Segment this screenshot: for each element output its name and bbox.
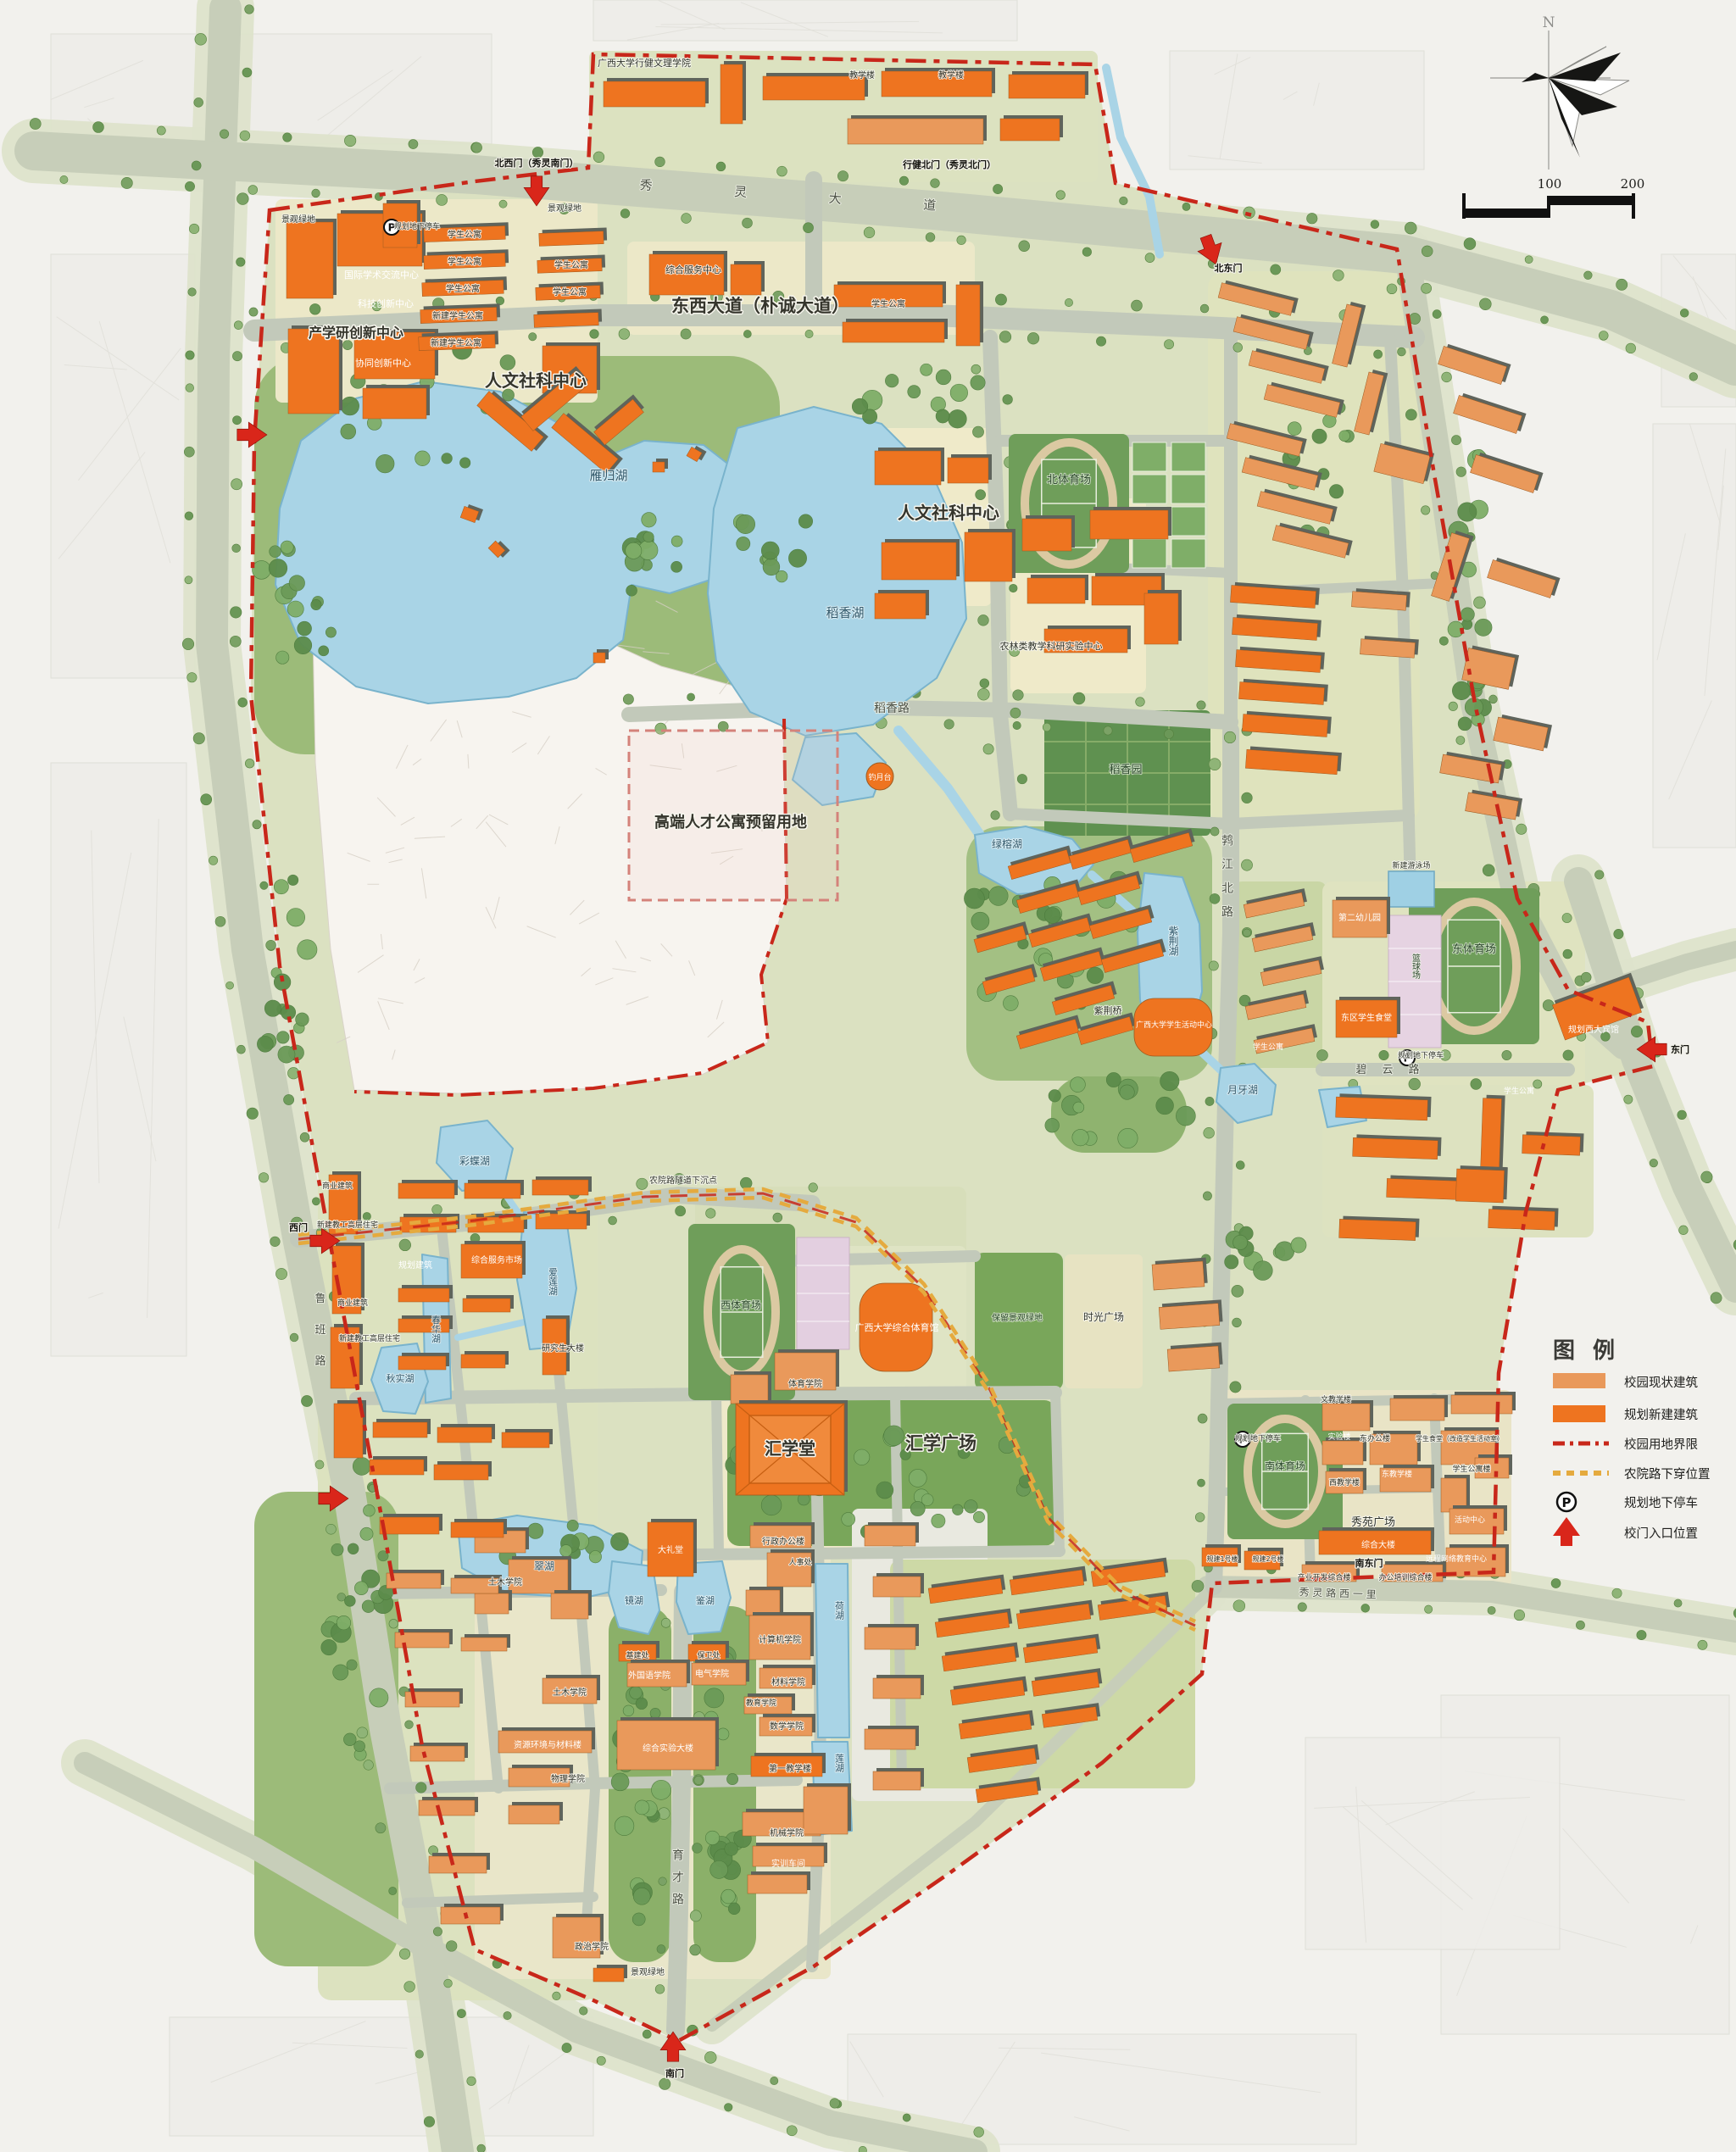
street-tree <box>1674 1599 1682 1607</box>
street-tree <box>637 1178 648 1189</box>
map-label: 稻香园 <box>1109 764 1142 776</box>
map-label: 彩蝶湖 <box>459 1154 490 1167</box>
park-tree <box>635 1800 649 1815</box>
map-label: 景观绿地 <box>631 1966 665 1977</box>
map-label: 鉴湖 <box>696 1595 715 1606</box>
park-tree <box>854 1449 870 1465</box>
existing-building <box>865 1729 915 1749</box>
lake <box>815 1564 849 1738</box>
street-tree <box>1164 340 1173 349</box>
building <box>287 219 337 298</box>
park-tree <box>1003 996 1018 1011</box>
street-tree <box>771 2077 778 2084</box>
building <box>1000 115 1063 141</box>
street-tree <box>1056 191 1066 200</box>
tennis-court <box>1132 442 1166 471</box>
park-tree <box>949 409 967 428</box>
street-tree <box>532 147 542 157</box>
building <box>804 1783 851 1834</box>
map-label: 西体育场 <box>721 1298 761 1311</box>
planned-building <box>875 451 941 485</box>
street-tree <box>1017 774 1027 783</box>
park-tree <box>502 389 514 401</box>
street-tree <box>1361 1604 1370 1612</box>
street-tree <box>1456 736 1465 744</box>
building <box>1027 575 1088 603</box>
street-tree <box>259 1173 268 1182</box>
map-label: 人文社科中心 <box>485 370 587 391</box>
park-tree <box>988 887 1008 906</box>
park-tree <box>1106 1072 1121 1087</box>
building <box>746 1587 783 1615</box>
park-tree <box>281 541 293 553</box>
park-tree <box>626 542 642 559</box>
parking-icon-letter: P <box>1562 1495 1572 1510</box>
street-tree <box>1065 298 1072 306</box>
street-tree <box>690 1910 701 1921</box>
street-tree <box>1581 972 1591 982</box>
map-label: 电气学院 <box>695 1668 729 1679</box>
planned-building <box>373 1422 427 1437</box>
street-tree <box>185 181 194 191</box>
park-tree <box>999 1437 1015 1454</box>
street-tree <box>315 1460 324 1469</box>
building <box>1390 1395 1448 1421</box>
park-tree <box>1049 1090 1060 1102</box>
street-tree <box>597 2056 605 2065</box>
building <box>865 1624 919 1649</box>
street-tree <box>1232 1285 1244 1297</box>
tennis-court <box>1171 475 1205 503</box>
existing-building <box>1152 1261 1205 1290</box>
street-tree <box>1242 792 1253 804</box>
street-tree <box>232 352 242 361</box>
map-label: 稻香湖 <box>826 605 864 620</box>
building <box>461 1634 510 1651</box>
park-tree <box>643 531 654 542</box>
map-label: 行政办公楼 <box>762 1536 804 1547</box>
building <box>1022 515 1075 551</box>
park-tree <box>651 1780 670 1799</box>
planned-building <box>334 1404 363 1458</box>
planned-building <box>1455 1169 1504 1203</box>
park-tree <box>1087 967 1104 984</box>
map-label: 学生公寓楼 <box>1452 1464 1490 1474</box>
street-tree <box>859 2146 866 2152</box>
road <box>407 1897 593 1903</box>
existing-building <box>873 1771 921 1790</box>
building <box>731 261 765 295</box>
street-tree <box>1131 300 1142 311</box>
city-context-block <box>170 2017 593 2136</box>
existing-building <box>387 1573 441 1588</box>
street-tree <box>944 720 954 730</box>
street-tree <box>1096 336 1105 346</box>
street-tree <box>405 1721 414 1729</box>
street-tree <box>1205 1097 1214 1105</box>
street-tree <box>1232 1318 1242 1327</box>
map-label: 学生公寓 <box>871 298 905 309</box>
street-tree <box>389 1887 397 1894</box>
street-tree <box>1533 1080 1542 1088</box>
map-label: 新建教工高层住宅 <box>339 1333 400 1343</box>
street-tree <box>1010 584 1018 592</box>
building <box>461 1351 509 1368</box>
planned-building <box>502 1432 549 1448</box>
street-tree <box>1650 1159 1657 1166</box>
park-tree <box>289 576 304 591</box>
street-tree <box>312 189 320 197</box>
park-tree <box>973 1511 984 1522</box>
street-tree <box>312 1198 320 1205</box>
park-tree <box>362 1600 375 1613</box>
park-tree <box>761 1495 782 1515</box>
street-tree <box>529 333 537 341</box>
street-tree <box>1488 1606 1495 1614</box>
street-tree <box>787 2126 797 2136</box>
street-tree <box>1433 310 1441 319</box>
park-tree <box>360 1527 373 1540</box>
building <box>437 1424 495 1443</box>
park-tree <box>1233 1235 1248 1249</box>
planned-building <box>398 1319 449 1332</box>
planned-building <box>1022 519 1071 551</box>
map-label: 农林类教学科研实验中心 <box>1000 640 1103 652</box>
planned-building <box>1027 578 1085 603</box>
street-tree <box>248 186 258 195</box>
legend-label-planned: 规划新建建筑 <box>1624 1408 1698 1422</box>
building <box>721 61 746 124</box>
building <box>1159 1299 1223 1329</box>
street-tree <box>30 118 41 129</box>
park-tree <box>798 514 812 528</box>
street-tree <box>232 544 241 553</box>
street-tree <box>1489 695 1498 703</box>
park-tree <box>1118 1128 1138 1148</box>
building <box>731 1371 771 1404</box>
planned-building <box>721 64 743 124</box>
map-label: 产业开发综合楼 <box>1297 1572 1350 1582</box>
building <box>463 1295 514 1312</box>
park-tree <box>632 1913 645 1926</box>
map-label: 新建学生公寓 <box>431 337 481 348</box>
street-tree <box>1540 316 1548 324</box>
park-tree <box>921 1494 933 1506</box>
map-label: 汇学堂 <box>765 1438 815 1459</box>
street-tree <box>1422 283 1432 293</box>
park-tree <box>725 1843 738 1856</box>
building <box>875 448 944 485</box>
street-tree <box>1626 343 1636 353</box>
map-label: 第一教学楼 <box>769 1763 811 1774</box>
street-tree <box>499 200 507 208</box>
map-label: 爱莲湖 <box>548 1267 559 1296</box>
street-tree <box>1449 702 1458 711</box>
planned-building <box>948 458 988 483</box>
park-tree <box>726 1773 737 1784</box>
planned-building <box>1090 510 1168 539</box>
planned-building <box>604 81 705 107</box>
street-tree <box>437 194 448 205</box>
park-tree <box>776 570 787 582</box>
park-tree <box>589 1550 601 1562</box>
map-label: 东体育场 <box>1452 943 1496 956</box>
existing-building <box>748 1875 807 1893</box>
map-label: 资源环境与材料楼 <box>514 1739 581 1750</box>
park-tree <box>971 375 985 390</box>
street-tree <box>446 1941 457 1952</box>
street-tree <box>690 1944 701 1955</box>
map-label: 综合服务中心 <box>665 264 721 275</box>
building <box>1480 1095 1505 1174</box>
existing-building <box>746 1590 780 1615</box>
park-tree <box>331 1543 343 1555</box>
street-tree <box>409 140 418 149</box>
park-tree <box>370 1688 388 1707</box>
street-tree <box>659 1877 667 1886</box>
building <box>956 281 983 346</box>
gate-label: 西门 <box>289 1221 308 1233</box>
street-tree <box>416 1782 426 1793</box>
street-tree <box>926 233 935 242</box>
street-tree <box>1298 1603 1306 1611</box>
building <box>1144 590 1182 644</box>
street-tree <box>270 1237 281 1247</box>
street-tree <box>1474 597 1486 609</box>
map-label: 广西大学行健文理学院 <box>598 57 691 69</box>
planned-building <box>398 1356 446 1370</box>
park-tree <box>321 1639 337 1654</box>
building <box>604 78 709 107</box>
map-label: 体育学院 <box>788 1378 822 1389</box>
park-tree <box>610 1532 628 1550</box>
street-tree <box>643 2030 651 2038</box>
existing-building <box>441 1907 500 1924</box>
planned-building <box>1339 1219 1416 1240</box>
building <box>848 115 987 144</box>
building <box>865 1522 919 1546</box>
building <box>1322 1400 1373 1431</box>
map-label: 紫荆桥 <box>1094 1005 1122 1016</box>
map-label: 学生公寓 <box>1504 1086 1534 1096</box>
planned-building <box>398 1183 454 1198</box>
map-label: 南体育场 <box>1265 1460 1305 1472</box>
street-tree <box>1599 331 1608 340</box>
park-tree <box>354 1582 368 1595</box>
street-tree <box>830 2099 839 2108</box>
street-tree <box>157 126 165 135</box>
street-tree <box>1387 284 1397 294</box>
street-tree <box>1678 1110 1687 1120</box>
street-tree <box>991 811 1000 820</box>
street-tree <box>236 1045 245 1054</box>
north-label: N <box>1543 14 1555 31</box>
legend-label-boundary: 校园用地界限 <box>1624 1437 1698 1452</box>
building <box>468 1214 527 1232</box>
park-tree <box>885 374 899 387</box>
map-label: 实验楼 <box>1327 1432 1350 1442</box>
park-tree <box>1073 1102 1084 1113</box>
map-label: 学生公寓 <box>446 283 480 294</box>
street-tree <box>275 1268 287 1279</box>
street-tree <box>1195 1513 1205 1522</box>
map-label: 数学学院 <box>770 1721 804 1732</box>
street-tree <box>1198 1414 1207 1423</box>
park-tree <box>294 637 312 654</box>
street-tree <box>1379 1050 1388 1059</box>
park-tree <box>710 1860 728 1878</box>
street-tree <box>1612 1588 1622 1598</box>
building <box>593 1965 627 1982</box>
park-tree <box>932 1514 945 1527</box>
road <box>676 1592 683 2030</box>
tennis-court <box>1132 539 1166 568</box>
street-tree <box>1371 220 1379 229</box>
street-tree <box>424 2116 434 2127</box>
park-tree <box>278 1046 295 1063</box>
building <box>1090 507 1171 539</box>
map-label: 外国语学院 <box>628 1670 670 1681</box>
street-tree <box>980 679 989 688</box>
street-tree <box>978 614 989 626</box>
street-tree <box>1374 350 1383 359</box>
planned-building <box>380 1517 439 1534</box>
street-tree <box>1203 1192 1211 1200</box>
street-tree <box>864 227 875 238</box>
street-tree <box>694 1776 703 1784</box>
existing-building <box>873 1576 921 1597</box>
building <box>865 1726 919 1749</box>
street-tree <box>1145 253 1155 263</box>
street-tree <box>247 1108 258 1119</box>
map-label: 计算机学院 <box>759 1634 801 1645</box>
map-label: 高端人才公寓预留用地 <box>654 813 807 831</box>
street-tree <box>1451 436 1461 445</box>
street-tree <box>1224 731 1236 743</box>
street-tree <box>1082 247 1091 256</box>
street-tree <box>415 2050 423 2058</box>
park-tree <box>1071 1077 1086 1093</box>
park-tree <box>500 355 515 370</box>
map-label: 机械学院 <box>770 1827 804 1838</box>
street-tree <box>1471 1079 1482 1090</box>
park-tree <box>287 601 303 617</box>
park-tree <box>1452 681 1471 700</box>
street-tree <box>399 1239 411 1251</box>
planned-building <box>1387 1178 1466 1199</box>
park-tree <box>344 1595 355 1606</box>
map-label: 基建处 <box>626 1650 648 1660</box>
street-tree <box>657 1945 665 1954</box>
park-tree <box>257 1036 273 1052</box>
street-tree <box>444 1979 453 1988</box>
park-tree <box>253 560 271 579</box>
street-tree <box>1010 708 1021 718</box>
map-label: 碧云路 <box>1355 1063 1434 1076</box>
street-tree <box>743 218 753 228</box>
park-tree <box>1475 619 1492 636</box>
map-label: 绿榕湖 <box>992 837 1022 850</box>
map-label: 景观绿地 <box>281 214 315 225</box>
map-label: 土木学院 <box>553 1687 587 1698</box>
building <box>948 454 992 483</box>
park-tree <box>884 1426 904 1446</box>
city-context-block <box>1170 51 1424 170</box>
map-label: 汇学广场 <box>905 1433 976 1454</box>
street-tree <box>593 152 604 163</box>
planned-building <box>461 1354 505 1368</box>
street-tree <box>1398 348 1406 356</box>
tennis-court <box>1171 539 1205 568</box>
building <box>398 1315 453 1332</box>
street-tree <box>1233 343 1243 353</box>
street-tree <box>773 1213 782 1222</box>
park-tree <box>630 1687 643 1699</box>
building <box>465 1180 524 1198</box>
street-tree <box>899 176 908 185</box>
street-tree <box>245 759 254 768</box>
map-label: 广西大学学生活动中心 <box>1136 1020 1212 1030</box>
map-label: 人事处 <box>788 1557 811 1567</box>
street-tree <box>242 68 252 77</box>
park-tree <box>287 875 298 885</box>
tennis-court <box>1132 475 1166 503</box>
park-tree <box>671 536 682 547</box>
street-tree <box>659 2078 670 2089</box>
street-tree <box>1421 506 1429 514</box>
map-canvas: PPP北西门（秀灵南门）行健北门（秀灵北门）北东门西门南门东门南东门东西大道（朴… <box>0 0 1736 2152</box>
street-tree <box>983 744 993 754</box>
planned-building <box>882 71 992 97</box>
street-tree <box>1209 961 1218 970</box>
park-tree <box>337 1615 351 1630</box>
park-tree <box>287 908 305 926</box>
map-label: 东办公楼 <box>1360 1433 1390 1443</box>
planned-building <box>875 593 926 619</box>
map-label: 新建游泳场 <box>1392 860 1430 870</box>
park-tree <box>737 537 750 550</box>
map-label: 教学楼 <box>938 70 964 81</box>
park-tree <box>284 1094 294 1104</box>
planned-building <box>593 1968 624 1982</box>
park-tree <box>341 397 359 415</box>
park-tree <box>560 1545 572 1557</box>
map-label: 钓月台 <box>868 772 891 782</box>
street-tree <box>1464 238 1476 250</box>
park-tree <box>1291 1237 1306 1253</box>
building <box>398 1285 453 1302</box>
street-tree <box>433 1927 442 1936</box>
planned-building <box>965 532 1012 581</box>
street-tree <box>693 1843 703 1854</box>
map-label: 秀苑广场 <box>1351 1516 1395 1529</box>
street-tree <box>195 33 207 45</box>
street-tree <box>1317 1050 1328 1061</box>
building <box>398 1180 458 1198</box>
planned-building <box>532 1180 588 1195</box>
street-tree <box>260 881 268 889</box>
street-tree <box>215 916 225 926</box>
street-tree <box>1405 222 1416 234</box>
park-tree <box>728 1903 740 1915</box>
map-label: 研究生大楼 <box>542 1343 584 1354</box>
street-tree <box>809 1183 818 1193</box>
street-tree <box>364 1760 374 1771</box>
existing-building <box>410 1746 465 1761</box>
existing-building <box>1159 1304 1220 1330</box>
street-tree <box>1120 197 1128 205</box>
park-tree <box>1156 1097 1174 1115</box>
